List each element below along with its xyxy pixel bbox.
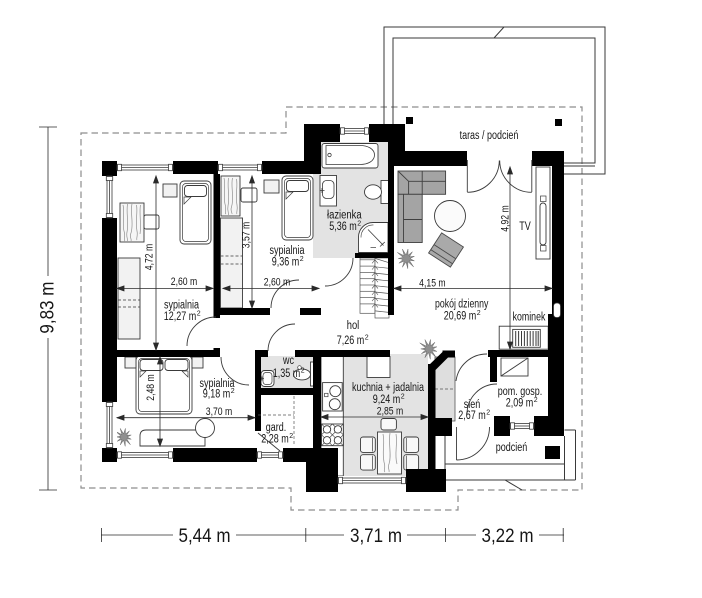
svg-text:2: 2 — [231, 388, 235, 395]
svg-text:2: 2 — [534, 397, 538, 404]
svg-text:2,85 m: 2,85 m — [377, 406, 404, 418]
svg-text:9,36 m: 9,36 m — [272, 257, 300, 269]
svg-text:3,22 m: 3,22 m — [482, 526, 534, 547]
svg-text:2: 2 — [477, 310, 481, 317]
svg-text:1,35 m: 1,35 m — [273, 368, 301, 380]
svg-text:9,83 m: 9,83 m — [38, 282, 59, 334]
svg-text:3,71 m: 3,71 m — [350, 526, 402, 547]
svg-text:2: 2 — [486, 410, 490, 417]
svg-text:gard.: gard. — [266, 422, 286, 434]
svg-text:łazienka: łazienka — [327, 209, 362, 221]
svg-text:9,18 m: 9,18 m — [203, 389, 231, 401]
svg-text:2: 2 — [401, 394, 405, 401]
svg-text:2,09 m: 2,09 m — [506, 398, 534, 410]
svg-text:TV: TV — [519, 221, 531, 233]
svg-text:sypialnia: sypialnia — [164, 300, 199, 312]
svg-text:podcień: podcień — [496, 442, 527, 454]
svg-text:taras / podcień: taras / podcień — [460, 130, 519, 142]
svg-text:4,15 m: 4,15 m — [419, 277, 446, 289]
svg-text:2,60 m: 2,60 m — [264, 277, 291, 289]
svg-text:5,36 m: 5,36 m — [329, 221, 357, 233]
svg-text:2,67 m: 2,67 m — [458, 410, 486, 422]
svg-text:2: 2 — [301, 368, 305, 375]
svg-text:4,92 m: 4,92 m — [500, 205, 512, 232]
svg-text:9,24 m: 9,24 m — [373, 394, 401, 406]
svg-text:3,57 m: 3,57 m — [241, 222, 253, 249]
svg-text:2,48 m: 2,48 m — [145, 374, 157, 401]
svg-text:20,69 m: 20,69 m — [444, 310, 476, 322]
svg-text:2,60 m: 2,60 m — [171, 276, 198, 288]
svg-text:kominek: kominek — [513, 312, 546, 324]
svg-text:3,70 m: 3,70 m — [206, 406, 233, 418]
svg-text:2,28 m: 2,28 m — [261, 434, 289, 446]
svg-text:2: 2 — [365, 335, 369, 342]
svg-text:hol: hol — [347, 320, 360, 332]
svg-text:2: 2 — [357, 221, 361, 228]
svg-text:5,44 m: 5,44 m — [179, 526, 231, 547]
svg-text:pokój dzienny: pokój dzienny — [435, 299, 488, 311]
svg-text:7,26 m: 7,26 m — [337, 335, 365, 347]
svg-text:2: 2 — [289, 433, 293, 440]
svg-text:12,27 m: 12,27 m — [164, 311, 196, 323]
svg-text:2: 2 — [300, 256, 304, 263]
svg-text:2: 2 — [197, 311, 201, 318]
svg-text:4,72 m: 4,72 m — [144, 244, 156, 271]
svg-text:wc: wc — [282, 355, 294, 367]
svg-text:kuchnia + jadalnia: kuchnia + jadalnia — [352, 382, 424, 394]
